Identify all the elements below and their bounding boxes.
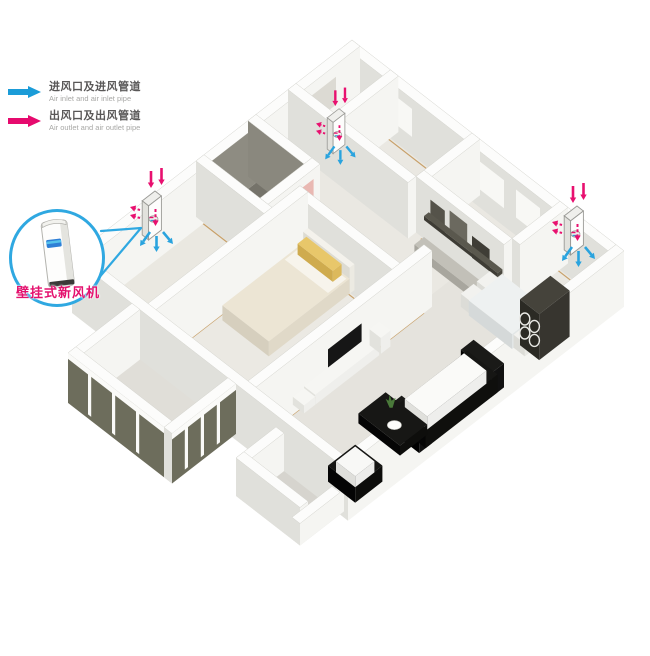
legend: 进风口及进风管道 Air inlet and air inlet pipe 出风… <box>8 82 141 141</box>
legend-item-air-inlet: 进风口及进风管道 Air inlet and air inlet pipe <box>8 82 141 102</box>
air-inlet-arrow-icon <box>8 85 42 99</box>
air-outlet-arrow-icon <box>8 114 42 128</box>
product-label: 壁挂式新风机 <box>5 282 111 301</box>
air-inlet-label: 进风口及进风管道 <box>49 82 141 94</box>
air-inlet-sublabel: Air inlet and air inlet pipe <box>49 95 141 103</box>
air-outlet-label: 出风口及出风管道 <box>49 111 141 123</box>
legend-item-air-outlet: 出风口及出风管道 Air outlet and air outlet pipe <box>8 111 141 131</box>
ventilation-system-diagram: 进风口及进风管道 Air inlet and air inlet pipe 出风… <box>0 0 650 656</box>
product-callout: 壁挂式新风机 <box>9 209 105 307</box>
air-outlet-sublabel: Air outlet and air outlet pipe <box>49 124 141 132</box>
